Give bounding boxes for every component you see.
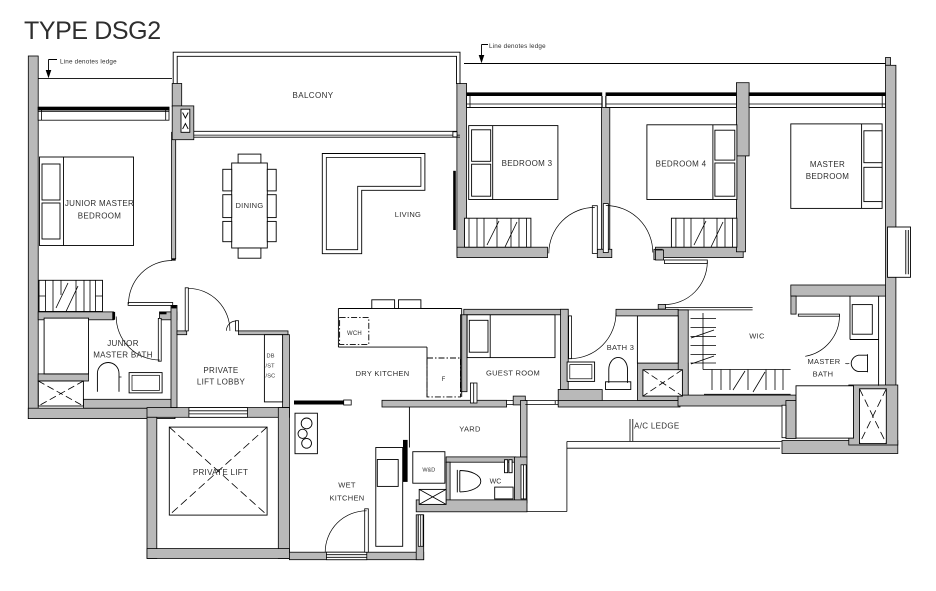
svg-text:WIC: WIC: [749, 332, 765, 341]
svg-text:GUEST ROOM: GUEST ROOM: [486, 369, 540, 378]
svg-text:YARD: YARD: [459, 425, 481, 434]
svg-text:BATH 3: BATH 3: [607, 343, 635, 352]
svg-text:BEDROOM 3: BEDROOM 3: [502, 159, 553, 168]
svg-text:F: F: [442, 377, 446, 383]
svg-text:A/C LEDGE: A/C LEDGE: [634, 422, 679, 431]
svg-text:LIVING: LIVING: [395, 210, 421, 219]
svg-text:WC: WC: [490, 479, 502, 486]
svg-text:DRY KITCHEN: DRY KITCHEN: [356, 369, 410, 378]
svg-text:DB/ST/SC: DB/ST/SC: [266, 354, 276, 380]
svg-text:WCH: WCH: [347, 331, 362, 337]
svg-text:W&D: W&D: [422, 468, 435, 474]
svg-text:Line denotes ledge: Line denotes ledge: [60, 59, 117, 66]
svg-text:BEDROOM 4: BEDROOM 4: [656, 160, 707, 169]
svg-text:TYPE DSG2: TYPE DSG2: [24, 17, 161, 45]
svg-text:DINING: DINING: [235, 201, 263, 210]
svg-text:BALCONY: BALCONY: [292, 91, 333, 100]
svg-text:PRIVATE LIFT: PRIVATE LIFT: [193, 468, 248, 477]
svg-text:Line denotes ledge: Line denotes ledge: [489, 43, 546, 50]
